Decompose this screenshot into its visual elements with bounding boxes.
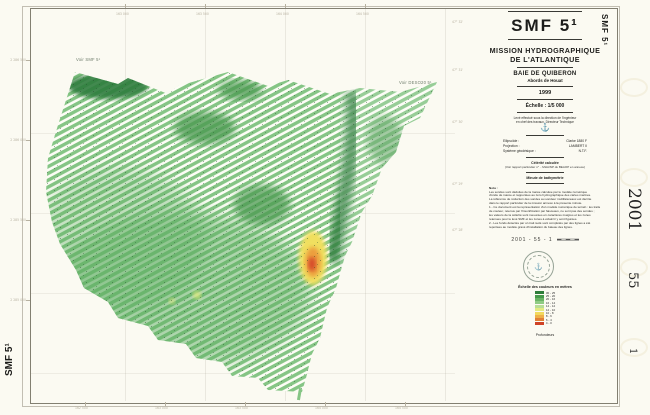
geodesy-row: Système géodésique :N.T.F. (503, 149, 587, 154)
grid-tick (365, 4, 366, 8)
grid-tick-label: 2 285 500 (0, 218, 26, 222)
reference-number: 2001 - 55 - 1 (511, 237, 552, 243)
title-block: SMF 5¹ MISSION HYDROGRAPHIQUE DE L'ATLAN… (486, 8, 604, 243)
depth-colour-legend: Échelle des couleurs en mètres 30 - 2525… (492, 285, 598, 337)
grid-tick (285, 4, 286, 8)
right-margin-series: 55 (625, 272, 640, 289)
legend-rows: 30 - 2525 - 2020 - 1616 - 1414 - 1212 - … (535, 291, 555, 325)
minute-label: Minute de bathymétrie (486, 176, 604, 180)
organisation-line2: DE L'ATLANTIQUE (486, 55, 604, 64)
nota-line: reportées au modèle gravé d'installation… (489, 226, 601, 230)
celerite-note: (Voir rapport particulier n° .. MHA/NP d… (486, 165, 604, 169)
legend-row-label: 4 - 0 (546, 321, 552, 325)
survey-subarea: Abords de Houat (486, 78, 604, 83)
grid-tick-label: 47° 28' (452, 228, 463, 232)
right-margin-year: 2001 (624, 188, 644, 231)
nota-block: Nota : Les sondes sont déduites de la ma… (489, 187, 601, 230)
geodesy-field-label: Système géodésique : (503, 149, 536, 154)
grid-tick-label: 47° 30' (452, 120, 463, 124)
scale-statement: Échelle : 1/5 000 (486, 103, 604, 109)
left-margin-sheet-code: SMF 5¹ (4, 343, 15, 376)
official-stamp: ⚓ (523, 251, 554, 282)
mini-scale-bar (557, 237, 579, 243)
geodesy-field-value: N.T.F. (579, 149, 587, 154)
survey-area: BAIE DE QUIBERON (486, 71, 604, 77)
grid-tick (26, 60, 30, 61)
legend-swatch (535, 322, 544, 325)
grid-tick-label: 163 000 (155, 406, 168, 410)
grid-tick (125, 4, 126, 8)
right-margin-sheet-number: 1 (627, 348, 638, 354)
right-margin-sheet-code: SMF 5¹ (600, 14, 609, 46)
grid-tick (26, 220, 30, 221)
grid-tick (26, 300, 30, 301)
legend-title: Échelle des couleurs en mètres (492, 285, 598, 289)
geodesy-table: Ellipsoïde :Clarke 1880 FProjection :LAM… (503, 139, 587, 153)
grid-tick (205, 4, 206, 8)
grid-tick-label: 163 500 (196, 12, 209, 16)
sheet-code: SMF 5¹ (486, 16, 604, 36)
grid-tick-label: 163 500 (235, 406, 248, 410)
legend-footer: Profondeurs (492, 333, 598, 337)
survey-year: 1999 (486, 90, 604, 96)
map-ref-label-right: Voir DESO20 5¹ (399, 80, 432, 85)
sounding-dots (30, 8, 460, 408)
grid-tick-label: 162 500 (75, 406, 88, 410)
grid-tick-label: 47° 32' (452, 20, 463, 24)
legend-row: 4 - 0 (535, 322, 555, 325)
stamp-anchor-icon: ⚓ (534, 263, 543, 271)
grid-tick-label: 164 500 (356, 12, 369, 16)
anchor-icon: ⚓ (486, 124, 604, 132)
grid-tick-label: 164 000 (276, 12, 289, 16)
grid-tick-label: 2 285 000 (0, 298, 26, 302)
grid-tick-label: 164 500 (395, 406, 408, 410)
grid-tick-label: 2 286 500 (0, 58, 26, 62)
grid-tick-label: 163 000 (116, 12, 129, 16)
grid-tick-label: 47° 29' (452, 182, 463, 186)
grid-tick-label: 164 000 (315, 406, 328, 410)
survey-sheet: Voir SMF 5¹ Voir DESO20 5¹ SMF 5¹ MISSIO… (0, 0, 650, 415)
organisation-line1: MISSION HYDROGRAPHIQUE (486, 46, 604, 55)
grid-tick (26, 140, 30, 141)
map-ref-label-left: Voir SMF 5¹ (76, 57, 100, 62)
grid-tick-label: 47° 31' (452, 68, 463, 72)
grid-tick-label: 2 286 000 (0, 138, 26, 142)
